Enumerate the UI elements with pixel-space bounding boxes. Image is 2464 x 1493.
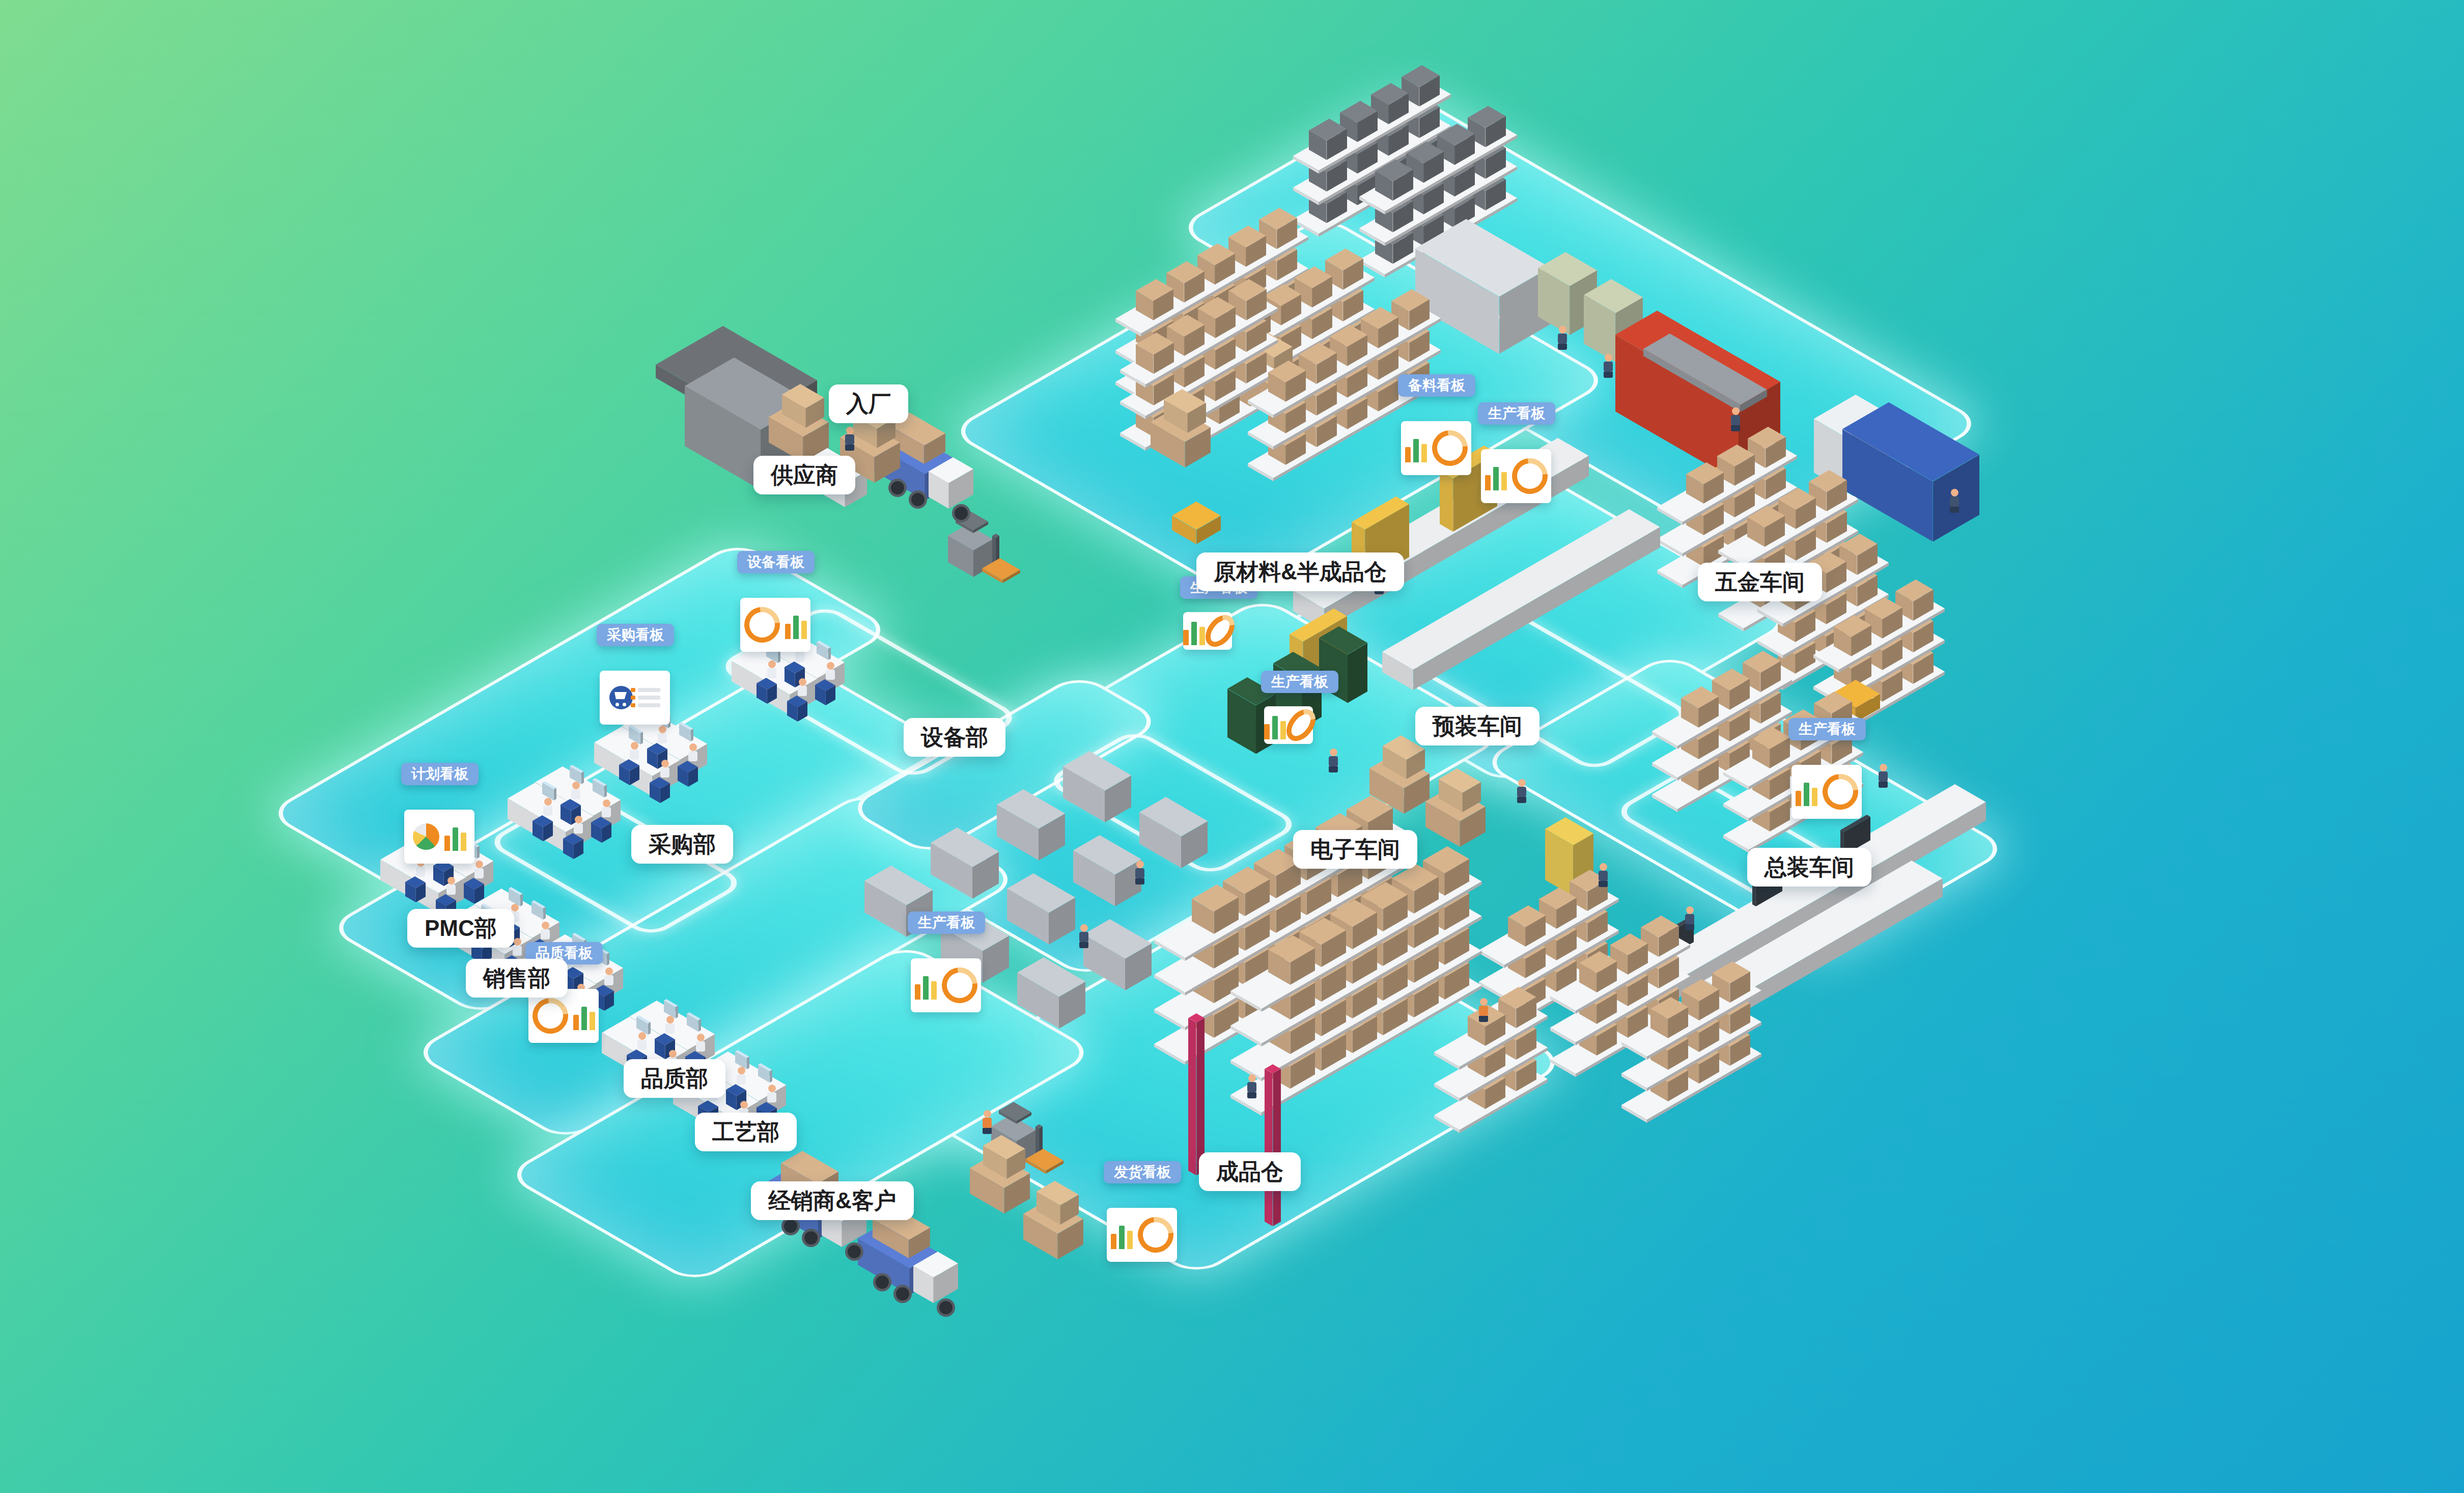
worker-body xyxy=(696,1041,705,1052)
ring-gauge-icon xyxy=(1504,451,1554,501)
worker-body xyxy=(474,868,484,878)
label-equipment-dept: 设备部 xyxy=(904,718,1005,757)
office-worker xyxy=(474,861,484,878)
kanban-production-kanban-4: 生产看板 xyxy=(908,911,985,934)
label-sales-dept: 销售部 xyxy=(466,959,568,998)
worker-head xyxy=(768,660,776,668)
worker-head xyxy=(1951,489,1958,496)
worker-body xyxy=(1685,914,1694,924)
label-pmc-dept: PMC部 xyxy=(407,909,514,948)
truck-wheel xyxy=(873,1273,891,1291)
worker xyxy=(1479,998,1488,1022)
worker-head xyxy=(544,798,552,806)
worker xyxy=(1599,863,1608,887)
truck-wheel xyxy=(952,504,970,522)
stacker-crane-side xyxy=(1196,1018,1205,1175)
worker-legs xyxy=(1479,1016,1488,1022)
worker-legs xyxy=(1517,797,1526,803)
office-worker xyxy=(571,782,580,799)
worker-legs xyxy=(1879,782,1888,788)
dashboard-board-stock-prep-kanban xyxy=(1401,421,1471,475)
kanban-shipping-kanban: 发货看板 xyxy=(1104,1161,1181,1183)
worker-body xyxy=(541,929,550,939)
label-preassembly-workshop: 预装车间 xyxy=(1415,707,1539,745)
worker-head xyxy=(689,743,697,751)
bar-chart-icon xyxy=(1183,617,1205,645)
bar-chart-icon xyxy=(444,822,466,851)
dashboard-board-production-kanban-1 xyxy=(1481,449,1551,503)
truck-wheel xyxy=(802,1229,820,1247)
label-dealer-customer: 经销商&客户 xyxy=(751,1181,914,1220)
worker-head xyxy=(984,1110,991,1118)
worker-legs xyxy=(1247,1092,1256,1098)
office-worker xyxy=(604,967,613,985)
kanban-production-kanban-3: 生产看板 xyxy=(1261,671,1338,693)
worker-head xyxy=(511,904,519,911)
bar-chart-icon xyxy=(1405,434,1427,462)
kanban-stock-prep-kanban: 备料看板 xyxy=(1398,374,1475,397)
worker-body xyxy=(1247,1082,1256,1092)
worker-body xyxy=(665,1024,675,1034)
label-supplier: 供应商 xyxy=(753,456,855,494)
ring-gauge-icon xyxy=(934,960,984,1010)
worker-head xyxy=(1880,764,1887,771)
dashboard-board-shipping-kanban xyxy=(1107,1208,1177,1262)
monitor-side xyxy=(648,1022,650,1035)
monitor-side xyxy=(698,1019,701,1032)
worker-body xyxy=(1517,787,1526,797)
pie-chart-icon xyxy=(413,823,439,850)
ring-gauge-icon xyxy=(1815,767,1865,817)
monitor-side xyxy=(553,788,556,800)
office-worker xyxy=(826,662,835,680)
office-worker xyxy=(798,678,807,696)
worker xyxy=(1135,861,1144,884)
worker-body xyxy=(658,733,667,743)
office-worker xyxy=(637,1032,647,1050)
office-worker xyxy=(737,1067,746,1085)
worker-head xyxy=(605,967,613,975)
dashboard-board-purchase-kanban xyxy=(600,671,670,725)
bar-chart-icon xyxy=(1796,778,1817,806)
worker-body xyxy=(1329,756,1338,766)
worker-head xyxy=(475,861,483,868)
worker xyxy=(1079,924,1088,948)
monitor-side xyxy=(690,729,693,741)
truck-wheel xyxy=(888,479,907,497)
bar-chart-icon xyxy=(1264,711,1286,739)
worker xyxy=(1950,489,1959,513)
kanban-plan-kanban: 计划看板 xyxy=(401,763,479,785)
worker-head xyxy=(542,922,549,929)
worker-head xyxy=(659,726,666,733)
worker-head xyxy=(1136,861,1144,868)
worker-head xyxy=(1732,407,1740,415)
ring-gauge-icon xyxy=(525,991,575,1041)
worker-body xyxy=(826,670,835,680)
dashboard-board-production-kanban-4 xyxy=(911,958,981,1012)
worker xyxy=(1604,354,1613,378)
worker-legs xyxy=(1731,425,1740,431)
worker-body xyxy=(1135,868,1144,878)
worker-legs xyxy=(1329,766,1338,772)
kanban-purchase-kanban: 采购看板 xyxy=(597,624,674,646)
office-worker xyxy=(658,726,667,743)
worker-head xyxy=(1600,863,1607,871)
worker-head xyxy=(1480,998,1488,1006)
worker-body xyxy=(767,668,776,678)
truck-wheel xyxy=(937,1298,955,1317)
ring-gauge-icon xyxy=(737,600,787,650)
worker-head xyxy=(768,1085,776,1092)
worker-body xyxy=(1599,871,1608,881)
worker-head xyxy=(1080,924,1088,932)
worker-legs xyxy=(1604,372,1613,378)
bar-chart-icon xyxy=(573,1002,595,1030)
kanban-production-kanban-5: 生产看板 xyxy=(1788,718,1866,740)
office-worker xyxy=(688,743,697,761)
office-worker xyxy=(541,922,550,939)
worker-head xyxy=(638,1032,646,1040)
gantry-arch-side xyxy=(1440,471,1453,532)
worker xyxy=(1879,764,1888,788)
worker-body xyxy=(513,946,522,956)
worker-body xyxy=(688,751,697,761)
dashboard-board-plan-kanban xyxy=(404,810,474,864)
worker-head xyxy=(669,1050,677,1058)
office-worker xyxy=(630,742,639,760)
worker-head xyxy=(1686,906,1694,914)
dashboard-board-equipment-kanban xyxy=(740,598,810,652)
office-worker xyxy=(660,760,669,778)
bar-chart-icon xyxy=(1111,1221,1133,1249)
monitor-side xyxy=(828,647,830,660)
worker-legs xyxy=(845,445,854,451)
worker-body xyxy=(1479,1006,1488,1016)
worker-head xyxy=(846,427,854,434)
monitor-side xyxy=(769,1070,772,1083)
office-worker xyxy=(665,1016,675,1034)
office-worker xyxy=(543,798,552,816)
label-raw-warehouse: 原材料&半成品仓 xyxy=(1196,552,1404,591)
worker-body xyxy=(574,823,583,834)
label-assembly-workshop: 总装车间 xyxy=(1747,848,1871,887)
ring-gauge-icon xyxy=(1424,423,1474,473)
worker-body xyxy=(1079,932,1088,942)
label-process-dept: 工艺部 xyxy=(695,1113,797,1151)
dashboard-board-production-kanban-3 xyxy=(1264,706,1313,744)
worker-head xyxy=(697,1034,705,1041)
worker-body xyxy=(416,867,425,877)
worker-head xyxy=(738,1067,745,1074)
office-worker xyxy=(767,660,776,678)
monitor-side xyxy=(581,771,583,784)
worker-head xyxy=(666,1016,674,1024)
dashboard-board-production-kanban-2 xyxy=(1183,612,1232,650)
worker-body xyxy=(602,807,611,817)
bar-chart-icon xyxy=(915,971,937,1000)
office-worker xyxy=(574,816,583,834)
label-finished-warehouse: 成品仓 xyxy=(1199,1152,1301,1191)
bar-chart-icon xyxy=(1485,462,1507,490)
worker-legs xyxy=(1135,878,1144,884)
monitor-side xyxy=(746,1057,749,1069)
worker-body xyxy=(1879,771,1888,782)
list-rows-icon xyxy=(638,688,660,707)
monitor-side xyxy=(675,1006,678,1018)
worker-head xyxy=(575,816,582,823)
worker-body xyxy=(1731,415,1740,425)
kanban-production-kanban-1: 生产看板 xyxy=(1478,402,1555,425)
worker-head xyxy=(1330,749,1337,756)
worker-body xyxy=(660,767,669,778)
worker xyxy=(1558,326,1567,350)
worker-body xyxy=(637,1040,647,1050)
office-worker xyxy=(767,1085,776,1102)
worker-legs xyxy=(1685,924,1694,930)
bar-chart-icon xyxy=(785,611,807,639)
monitor-side xyxy=(604,785,606,797)
office-worker xyxy=(696,1034,705,1052)
worker-body xyxy=(737,1074,746,1085)
worker xyxy=(1685,906,1694,930)
office-worker xyxy=(602,799,611,817)
monitor-side xyxy=(777,650,780,663)
worker-legs xyxy=(1079,942,1088,948)
worker xyxy=(1517,779,1526,803)
worker-body xyxy=(767,1092,776,1102)
worker-body xyxy=(1950,496,1959,507)
worker-legs xyxy=(1950,507,1959,513)
worker xyxy=(983,1110,992,1134)
worker-head xyxy=(1605,354,1612,362)
office-worker xyxy=(513,938,522,956)
worker-head xyxy=(799,678,806,686)
worker-head xyxy=(740,1101,748,1109)
kanban-equipment-kanban: 设备看板 xyxy=(737,551,815,573)
worker-body xyxy=(630,750,639,760)
worker-head xyxy=(514,938,521,946)
monitor-side xyxy=(543,907,545,920)
worker-body xyxy=(571,789,580,799)
office-worker xyxy=(446,877,456,895)
worker-body xyxy=(446,884,456,895)
worker xyxy=(1731,407,1740,431)
worker-body xyxy=(983,1118,992,1128)
worker-legs xyxy=(983,1128,992,1134)
worker-head xyxy=(1248,1074,1256,1082)
monitor-side xyxy=(606,953,609,965)
label-entry: 入厂 xyxy=(829,384,908,423)
worker-body xyxy=(845,434,854,445)
worker-head xyxy=(1559,326,1566,334)
worker-body xyxy=(795,652,804,662)
ring-gauge-icon xyxy=(1130,1210,1180,1260)
worker xyxy=(845,427,854,451)
label-purchasing-dept: 采购部 xyxy=(631,825,733,864)
worker-body xyxy=(543,806,552,816)
stacker-crane-side xyxy=(1188,1018,1196,1175)
worker-head xyxy=(603,799,610,807)
worker-body xyxy=(798,686,807,696)
worker xyxy=(1329,749,1338,772)
worker-body xyxy=(604,975,613,985)
worker-body xyxy=(1558,334,1567,344)
monitor-side xyxy=(520,894,522,906)
worker-legs xyxy=(1599,881,1608,887)
worker-legs xyxy=(1558,344,1567,350)
worker-head xyxy=(572,782,580,789)
monitor-side xyxy=(640,732,642,744)
worker-head xyxy=(827,662,834,670)
stacker-crane-side xyxy=(1265,1069,1273,1226)
worker-head xyxy=(631,742,638,750)
dashboard-board-production-kanban-5 xyxy=(1791,765,1862,819)
label-electronics-workshop: 电子车间 xyxy=(1293,830,1417,869)
cart-icon xyxy=(609,686,633,709)
smart-factory-scene: 计划看板采购看板设备看板品质看板备料看板生产看板生产看板生产看板生产看板生产看板… xyxy=(0,0,2464,1493)
stacker-crane-side xyxy=(1273,1069,1281,1226)
truck-wheel xyxy=(845,1242,863,1261)
worker-head xyxy=(1518,779,1526,787)
worker-body xyxy=(1604,362,1613,372)
worker xyxy=(1247,1074,1256,1098)
label-quality-dept: 品质部 xyxy=(624,1059,725,1098)
label-hardware-workshop: 五金车间 xyxy=(1698,563,1822,601)
worker-head xyxy=(661,760,669,767)
truck-wheel xyxy=(893,1285,912,1303)
truck-wheel xyxy=(909,490,927,509)
worker-head xyxy=(447,877,455,884)
monitor-side xyxy=(477,846,479,859)
